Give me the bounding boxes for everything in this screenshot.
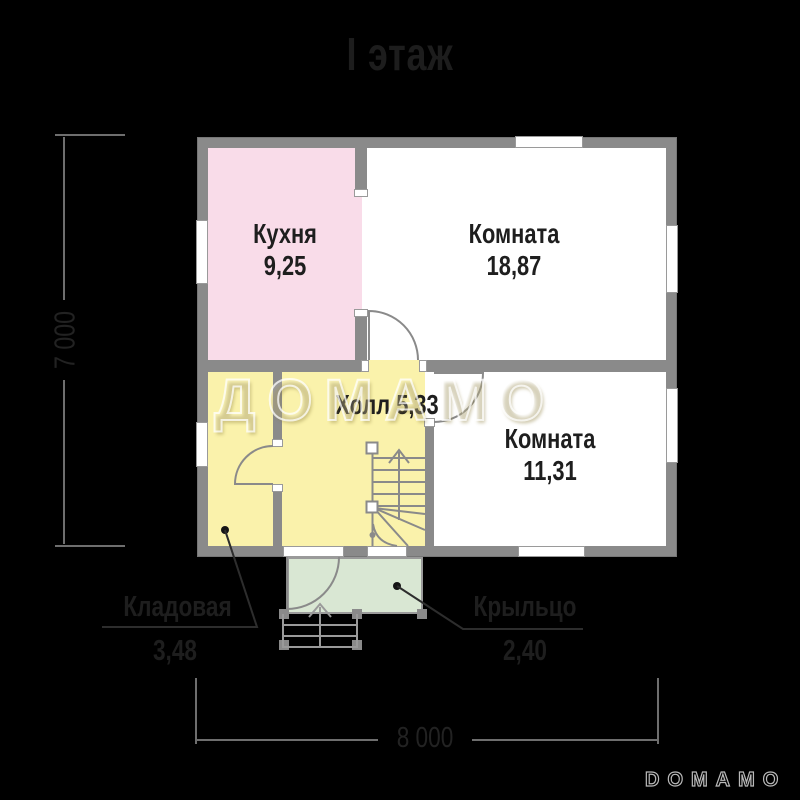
staircase [367, 443, 426, 547]
floor-plan-page: I этаж [0, 0, 800, 800]
room-large-area: 18,87 [395, 250, 632, 282]
room-small-area: 11,31 [460, 455, 641, 487]
kitchen-area: 9,25 [225, 250, 345, 282]
label-room-large: Комната 18,87 [395, 218, 632, 282]
door-arc-room-large [369, 311, 418, 360]
dimension-width-value: 8 000 [378, 722, 472, 755]
label-porch: Крыльцо [463, 592, 588, 622]
watermark: ДОМАМО [214, 367, 556, 434]
dimension-height-value: 7 000 [50, 311, 83, 369]
label-storage-area: 3,48 [113, 636, 238, 666]
door-arc-storage [235, 446, 273, 484]
label-kitchen: Кухня 9,25 [225, 218, 345, 282]
label-storage: Кладовая [113, 592, 242, 622]
room-large-name: Комната [395, 218, 632, 250]
kitchen-name: Кухня [225, 218, 345, 250]
label-porch-area: 2,40 [463, 636, 588, 666]
brand-logo: DOMAMO [645, 769, 786, 792]
door-arc-entrance [287, 557, 339, 609]
